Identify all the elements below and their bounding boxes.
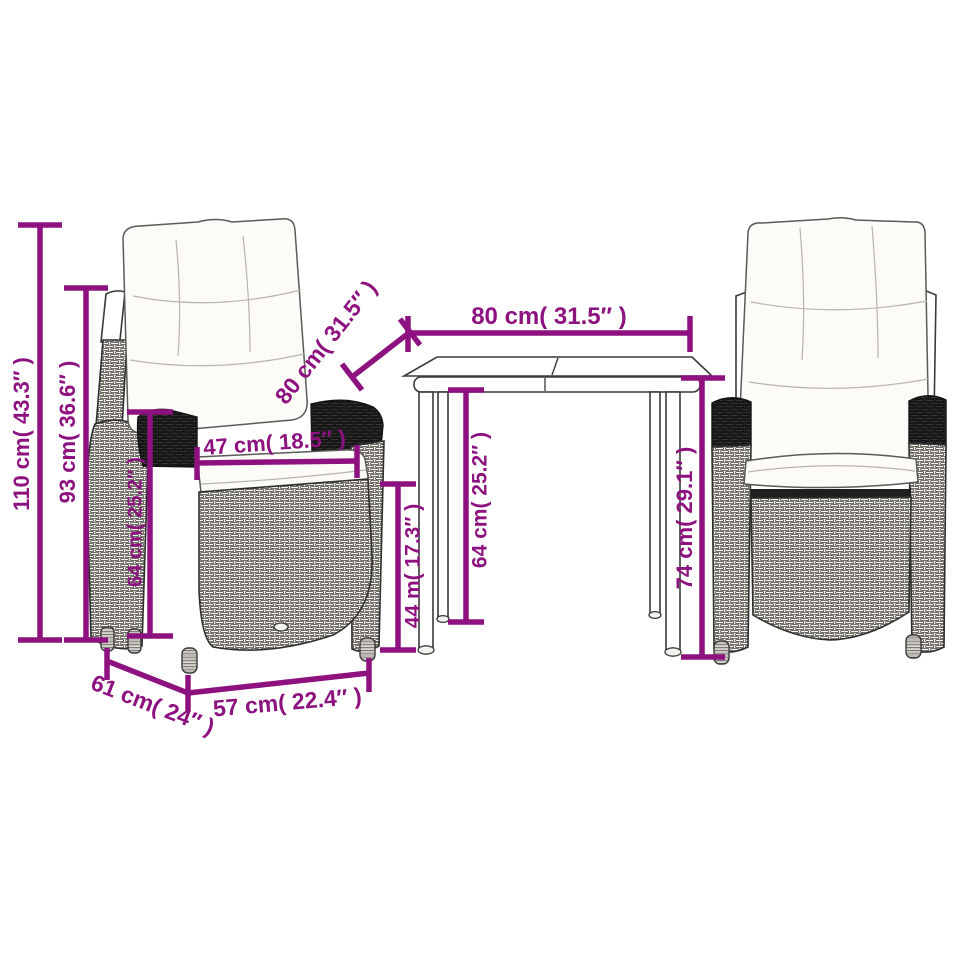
dim-label-table-height: 74 cm( 29.1″ ) bbox=[672, 447, 697, 590]
right-chair-leg bbox=[714, 641, 729, 664]
dim-label-chair-seat-height: 44 m( 17.3″ ) bbox=[402, 504, 425, 628]
right-chair-armrest-left bbox=[712, 398, 751, 449]
table-leg-rear-right bbox=[650, 392, 660, 614]
dim-label-chair-back-height: 93 cm( 36.6″ ) bbox=[55, 361, 80, 504]
left-chair-back-weave-upper bbox=[96, 340, 127, 428]
right-chair-drawing bbox=[712, 218, 946, 664]
right-chair-base bbox=[751, 497, 911, 640]
right-chair-armrest-right bbox=[909, 396, 946, 447]
dim-label-table-clearance-height: 64 cm( 25.2″ ) bbox=[469, 432, 492, 568]
left-chair-leg bbox=[360, 638, 375, 661]
left-chair-foot bbox=[274, 623, 288, 631]
right-chair-leg bbox=[906, 635, 921, 658]
table-drawing bbox=[404, 357, 712, 656]
dim-label-chair-total-height: 110 cm( 43.3″ ) bbox=[9, 357, 34, 511]
dim-label-chair-armrest-height: 64 cm( 25.2″ ) bbox=[124, 457, 146, 587]
dimension-diagram-canvas: 110 cm( 43.3″ ) 93 cm( 36.6″ ) 64 cm( 25… bbox=[0, 0, 955, 955]
dim-label-table-width: 80 cm( 31.5″ ) bbox=[471, 303, 627, 330]
left-chair-back-frame bbox=[101, 291, 125, 342]
table-leg-rear-left bbox=[438, 392, 448, 618]
right-chair-back-cushion bbox=[738, 218, 929, 470]
left-chair-near-armrest bbox=[138, 409, 197, 467]
left-chair-leg bbox=[182, 648, 197, 673]
dimension-diagram-page: 110 cm( 43.3″ ) 93 cm( 36.6″ ) 64 cm( 25… bbox=[0, 0, 955, 955]
right-chair-seat-cushion bbox=[744, 453, 918, 487]
left-chair-leg bbox=[128, 629, 141, 653]
